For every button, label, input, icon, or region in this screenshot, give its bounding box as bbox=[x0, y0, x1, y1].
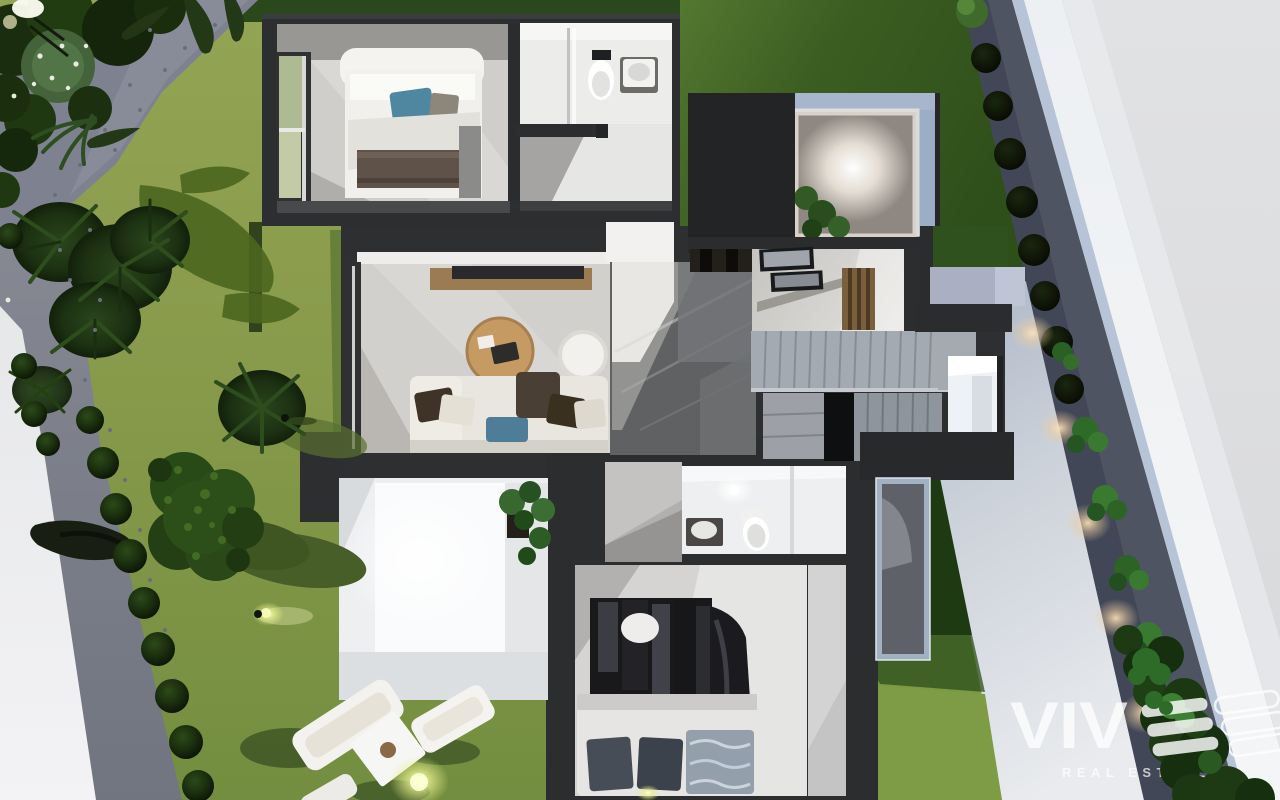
svg-text:VIV: VIV bbox=[1010, 688, 1128, 762]
